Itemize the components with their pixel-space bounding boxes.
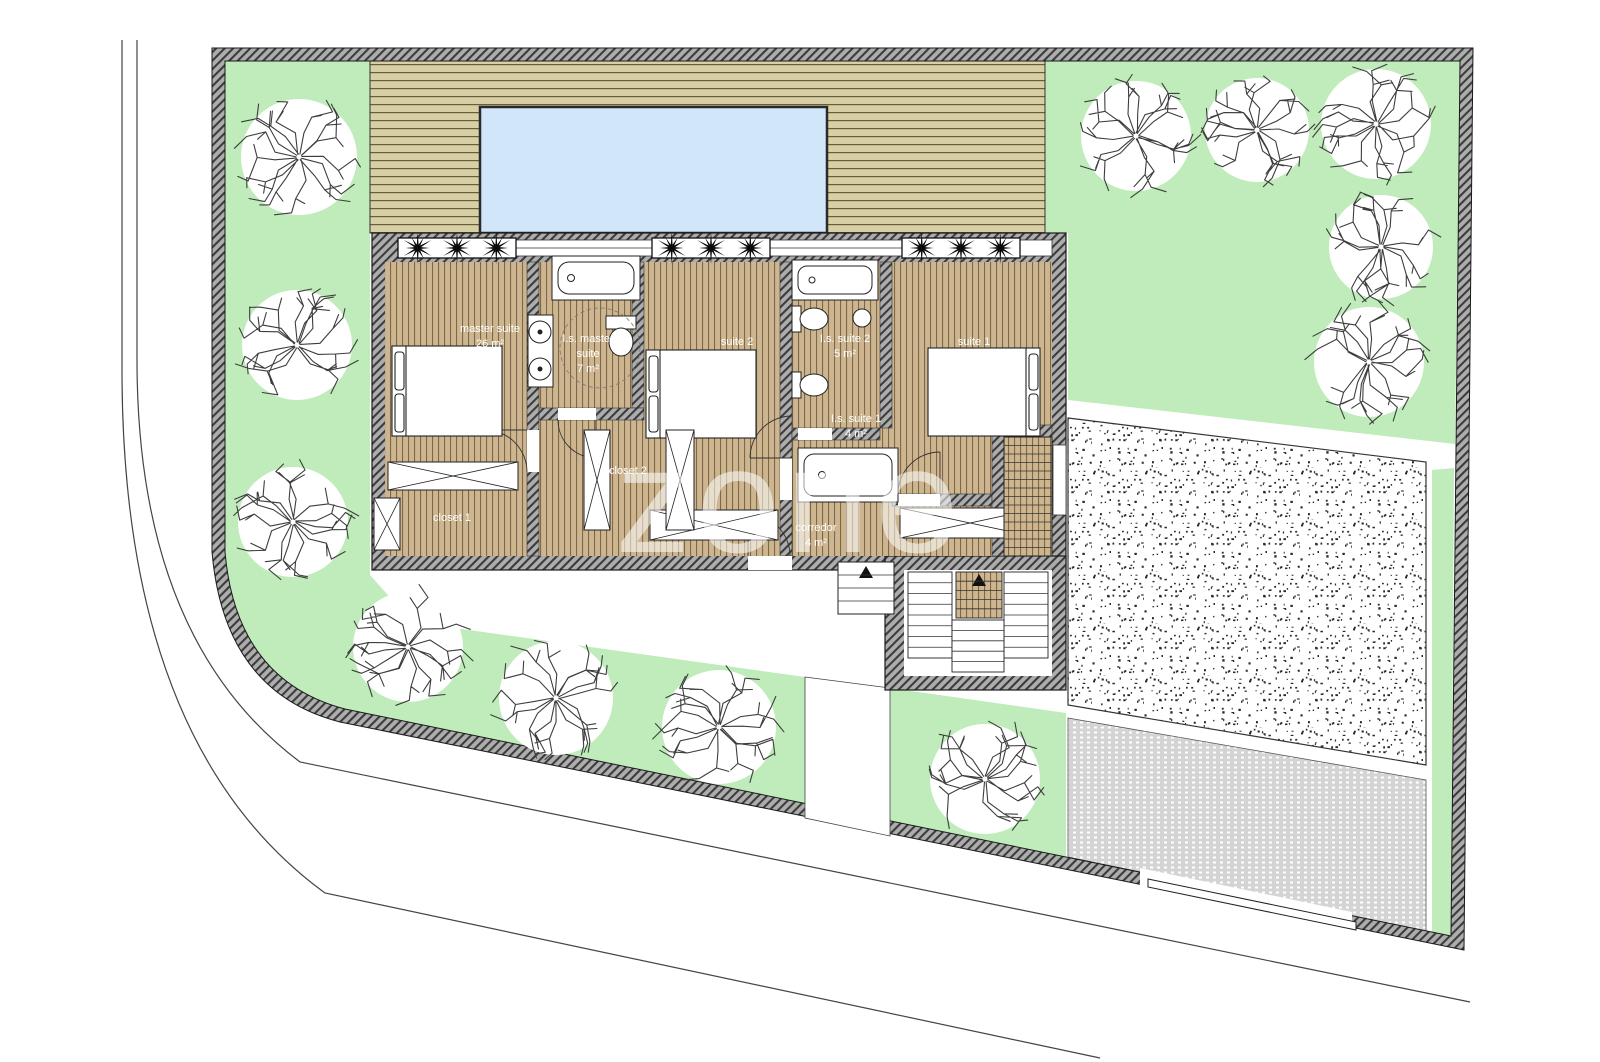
room-label-text: 7 m² [577, 363, 599, 375]
entry-path [805, 677, 890, 836]
gravel-area [1068, 418, 1426, 765]
door-gap [527, 430, 539, 472]
wardrobe [388, 462, 518, 490]
washbasin [853, 309, 871, 327]
watermark-text: zone [615, 416, 964, 584]
room-label-text: closet 1 [433, 512, 471, 524]
bidet-bowl [800, 374, 828, 396]
room-label-text: suite [576, 348, 599, 360]
wardrobe [584, 430, 610, 530]
door-gap [558, 408, 596, 420]
room-label-text: 26 m² [476, 338, 504, 350]
window-right-wall [1053, 445, 1066, 515]
pillow [649, 356, 658, 392]
pillow [395, 352, 404, 390]
wall [527, 262, 539, 556]
room-label-text: 5 m² [834, 348, 856, 360]
toilet-bowl [800, 308, 828, 330]
pillow [395, 394, 404, 432]
room-label-text: 14 m² [960, 351, 988, 363]
lawn-right-strip [1432, 468, 1454, 936]
pillow [1029, 394, 1038, 430]
pillow [1029, 354, 1038, 390]
drain [809, 277, 815, 283]
tree-canopy [930, 724, 1040, 834]
wall [880, 262, 892, 428]
site-plan-drawing: master suite26 m²I.s. mastersuite7 m²sui… [0, 0, 1600, 1062]
tree-canopy [499, 641, 613, 755]
tree-canopy [1329, 195, 1433, 299]
stair-flight [952, 620, 1004, 672]
toilet-tank [606, 316, 636, 329]
bed-master [392, 346, 502, 436]
room-label-text: I.s. suite 2 [820, 333, 870, 345]
pool-deck [370, 61, 1045, 233]
room-label-closet-1: closet 1 [433, 512, 471, 524]
tree-canopy [238, 467, 348, 577]
window [1020, 240, 1052, 256]
tree-canopy [241, 99, 357, 215]
drain [568, 275, 575, 282]
floor-plan-page: master suite26 m²I.s. mastersuite7 m²sui… [0, 0, 1600, 1062]
room-label-text: I.s. master [562, 333, 614, 345]
wardrobe [374, 498, 400, 550]
room-label-text: suite 1 [958, 336, 990, 348]
room-label-text: master suite [460, 323, 520, 335]
swimming-pool [480, 107, 827, 233]
room-label-text: 14 m² [723, 351, 751, 363]
room-label-text: suite 2 [721, 336, 753, 348]
tree-canopy [1321, 69, 1431, 179]
